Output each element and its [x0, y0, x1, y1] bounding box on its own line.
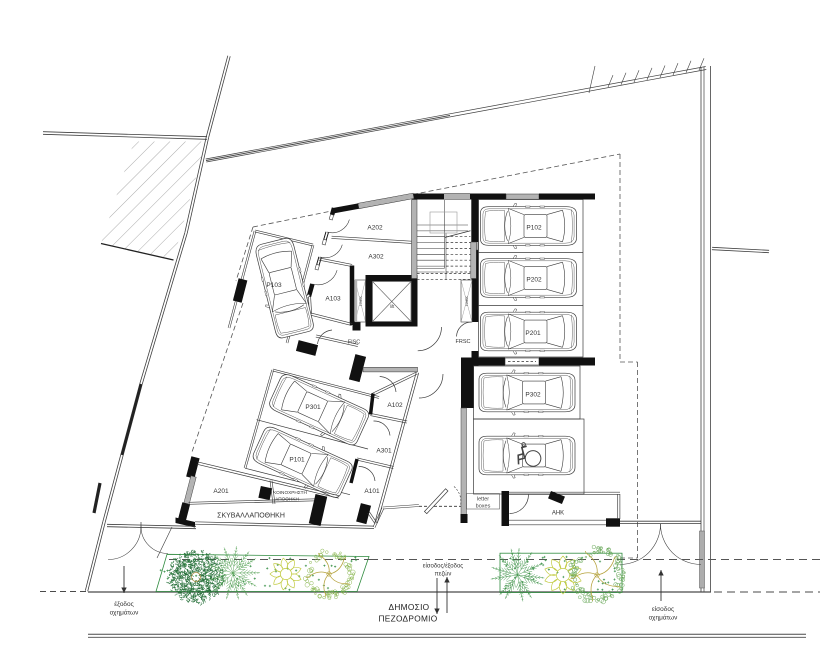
svg-text:ΔΗΜΟΣΙΟ: ΔΗΜΟΣΙΟ: [389, 602, 430, 612]
svg-text:ΠΕΖΟΔΡΟΜΙΟ: ΠΕΖΟΔΡΟΜΙΟ: [378, 614, 437, 624]
svg-text:A103: A103: [325, 296, 341, 303]
svg-text:ΑΠΟΘΗΚΗ: ΑΠΟΘΗΚΗ: [275, 497, 299, 502]
svg-text:πεζών: πεζών: [435, 572, 452, 578]
svg-text:A302: A302: [368, 254, 384, 261]
svg-text:A301: A301: [376, 448, 392, 455]
svg-text:A201: A201: [213, 488, 229, 495]
svg-text:έξοδος: έξοδος: [114, 600, 134, 608]
svg-text:P101: P101: [289, 457, 305, 464]
svg-text:είσοδος: είσοδος: [652, 605, 674, 613]
svg-text:ΣΚΥΒΑΛΛΑΠΟΘΗΚΗ: ΣΚΥΒΑΛΛΑΠΟΘΗΚΗ: [217, 513, 285, 520]
svg-text:P202: P202: [526, 277, 542, 284]
svg-text:οχημάτων: οχημάτων: [110, 609, 139, 617]
svg-text:A102: A102: [387, 402, 403, 409]
svg-text:AHK: AHK: [552, 511, 564, 517]
svg-text:ΗΛΕΚ: ΗΛΕΚ: [359, 296, 363, 306]
svg-text:letter: letter: [477, 497, 489, 503]
svg-text:P302: P302: [525, 392, 541, 399]
svg-text:P102: P102: [526, 225, 542, 232]
svg-text:P301: P301: [305, 404, 321, 411]
svg-text:A202: A202: [367, 225, 383, 232]
svg-text:P103: P103: [266, 282, 282, 289]
svg-text:FISC: FISC: [348, 340, 361, 346]
svg-text:boxes: boxes: [476, 504, 491, 510]
svg-text:είσοδος/έξοδος: είσοδος/έξοδος: [423, 563, 463, 570]
svg-text:A101: A101: [364, 488, 380, 495]
svg-text:FRSC: FRSC: [456, 339, 471, 345]
svg-text:P201: P201: [525, 330, 541, 337]
svg-text:ΗΛΕΚ: ΗΛΕΚ: [465, 296, 469, 306]
svg-text:ΚΟΙΝΟΧΡΗΣΤΗ: ΚΟΙΝΟΧΡΗΣΤΗ: [273, 490, 307, 495]
svg-text:οχημάτων: οχημάτων: [649, 614, 678, 622]
svg-text:lift: lift: [390, 304, 395, 309]
